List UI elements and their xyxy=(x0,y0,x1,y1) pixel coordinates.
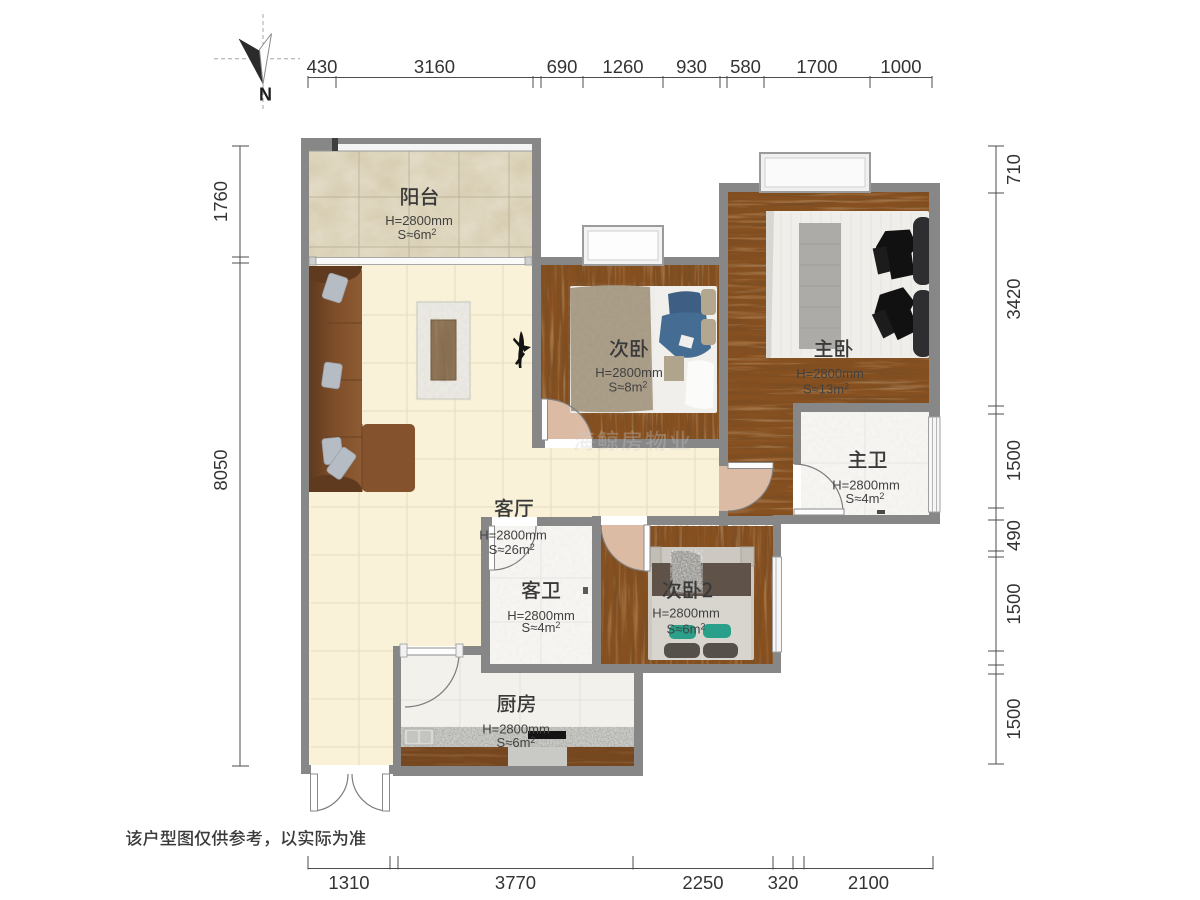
svg-text:S≈4m2: S≈4m2 xyxy=(846,491,885,506)
svg-text:2250: 2250 xyxy=(682,872,723,893)
svg-text:H=2800mm: H=2800mm xyxy=(796,366,864,381)
svg-text:H=2800mm: H=2800mm xyxy=(595,365,663,380)
svg-text:3160: 3160 xyxy=(414,56,455,77)
svg-text:2100: 2100 xyxy=(848,872,889,893)
svg-text:H=2800mm: H=2800mm xyxy=(385,213,453,228)
svg-text:430: 430 xyxy=(307,56,338,77)
svg-text:H=2800mm: H=2800mm xyxy=(479,528,547,543)
svg-text:S≈6m2: S≈6m2 xyxy=(667,622,706,637)
svg-text:S≈8m2: S≈8m2 xyxy=(609,380,648,395)
svg-text:1760: 1760 xyxy=(210,181,231,222)
svg-text:N: N xyxy=(259,85,272,105)
svg-text:1500: 1500 xyxy=(1003,698,1024,739)
svg-text:320: 320 xyxy=(768,872,799,893)
svg-text:1500: 1500 xyxy=(1003,583,1024,624)
svg-text:1700: 1700 xyxy=(796,56,837,77)
svg-text:580: 580 xyxy=(730,56,761,77)
svg-text:690: 690 xyxy=(547,56,578,77)
svg-text:1000: 1000 xyxy=(880,56,921,77)
svg-text:S≈26m2: S≈26m2 xyxy=(489,542,535,557)
svg-text:710: 710 xyxy=(1003,154,1024,185)
svg-text:S≈13m2: S≈13m2 xyxy=(803,382,849,397)
svg-text:490: 490 xyxy=(1003,520,1024,551)
svg-text:S≈6m2: S≈6m2 xyxy=(398,227,437,242)
svg-text:930: 930 xyxy=(676,56,707,77)
svg-text:3420: 3420 xyxy=(1003,278,1024,319)
svg-text:S≈4m2: S≈4m2 xyxy=(522,620,561,635)
svg-text:H=2800mm: H=2800mm xyxy=(652,606,720,621)
svg-text:1500: 1500 xyxy=(1003,440,1024,481)
svg-text:3770: 3770 xyxy=(495,872,536,893)
svg-text:8050: 8050 xyxy=(210,449,231,490)
svg-text:1310: 1310 xyxy=(328,872,369,893)
svg-text:S≈6m2: S≈6m2 xyxy=(497,735,536,750)
svg-text:1260: 1260 xyxy=(602,56,643,77)
